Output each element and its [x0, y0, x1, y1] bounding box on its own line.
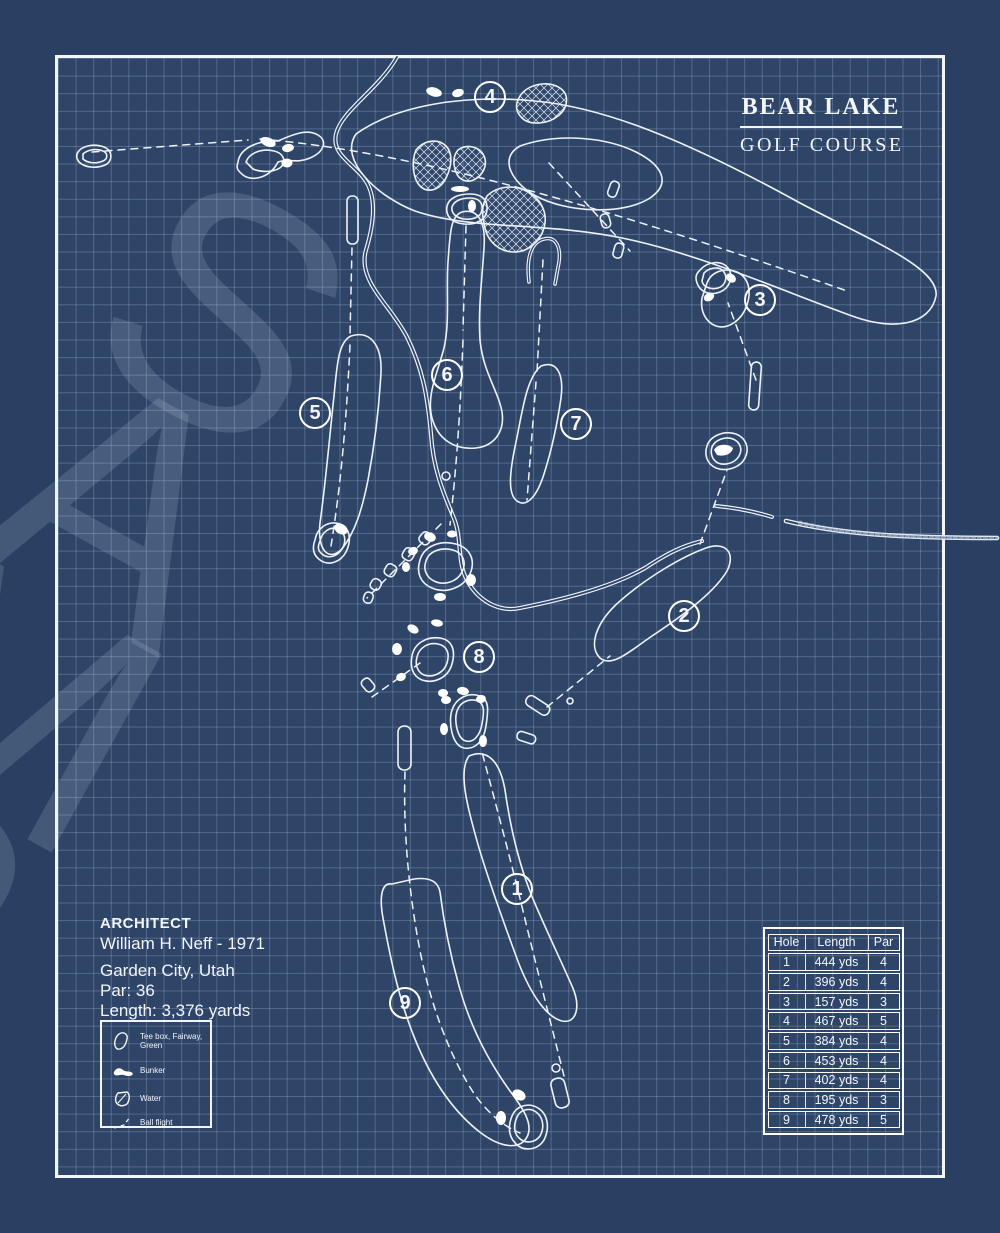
scorecard-header-row: Hole Length Par — [768, 934, 900, 952]
tee-fairway-green-icon — [110, 1030, 140, 1052]
hole-number: 3 — [754, 290, 765, 310]
hole-marker-9: 9 — [389, 987, 421, 1019]
hole-marker-5: 5 — [299, 397, 331, 429]
hole-number: 4 — [484, 87, 495, 107]
ui-layer: 123456789 BEAR LAKE GOLF COURSE ARCHITEC… — [0, 0, 1000, 1233]
poster-header: BEAR LAKE GOLF COURSE — [740, 94, 902, 157]
header-hole: Hole — [769, 935, 806, 951]
hole-marker-7: 7 — [560, 408, 592, 440]
hole-marker-4: 4 — [474, 81, 506, 113]
scorecard-row-1: 1 444 yds 4 — [768, 953, 900, 971]
hole-marker-2: 2 — [668, 600, 700, 632]
scorecard-table: Hole Length Par 1 444 yds 4 2 396 yds 4 … — [763, 927, 904, 1135]
hole-marker-3: 3 — [744, 284, 776, 316]
hole-number: 2 — [678, 606, 689, 626]
architect-name: William H. Neff - 1971 — [100, 935, 265, 952]
architect-block: ARCHITECT William H. Neff - 1971 Garden … — [100, 916, 265, 1022]
legend-item-water: Water — [110, 1088, 161, 1110]
hole-number: 1 — [511, 879, 522, 899]
course-subtitle: GOLF COURSE — [740, 134, 902, 157]
scorecard-row-4: 4 467 yds 5 — [768, 1012, 900, 1030]
scorecard-row-5: 5 384 yds 4 — [768, 1032, 900, 1050]
ball-flight-icon — [110, 1112, 140, 1134]
legend-item-ball-flight: Ball flight — [110, 1112, 172, 1134]
hole-marker-8: 8 — [463, 641, 495, 673]
scorecard-row-7: 7 402 yds 4 — [768, 1072, 900, 1090]
golf-course-blueprint-poster: SAMPLE — [0, 0, 1000, 1233]
scorecard-row-8: 8 195 yds 3 — [768, 1091, 900, 1109]
scorecard-row-3: 3 157 yds 3 — [768, 993, 900, 1011]
hole-number: 6 — [441, 365, 452, 385]
architect-heading: ARCHITECT — [100, 916, 265, 931]
bunker-icon — [110, 1060, 140, 1082]
course-length: Length: 3,376 yards — [100, 1002, 265, 1019]
hole-number: 7 — [570, 414, 581, 434]
header-length: Length — [806, 935, 869, 951]
scorecard-row-9: 9 478 yds 5 — [768, 1111, 900, 1129]
hole-number: 9 — [399, 993, 410, 1013]
title-divider — [740, 126, 902, 128]
scorecard-row-6: 6 453 yds 4 — [768, 1052, 900, 1070]
legend-item-bunker: Bunker — [110, 1060, 165, 1082]
water-icon — [110, 1088, 140, 1110]
legend-box: Tee box, Fairway, Green Bunker Water — [100, 1020, 212, 1128]
scorecard-row-2: 2 396 yds 4 — [768, 973, 900, 991]
legend-item-tee-fairway-green: Tee box, Fairway, Green — [110, 1030, 210, 1052]
hole-number: 5 — [309, 403, 320, 423]
hole-marker-6: 6 — [431, 359, 463, 391]
header-par: Par — [869, 935, 899, 951]
hole-marker-1: 1 — [501, 873, 533, 905]
hole-number: 8 — [473, 647, 484, 667]
architect-city: Garden City, Utah — [100, 962, 265, 979]
course-par: Par: 36 — [100, 982, 265, 999]
course-title: BEAR LAKE — [740, 94, 902, 121]
